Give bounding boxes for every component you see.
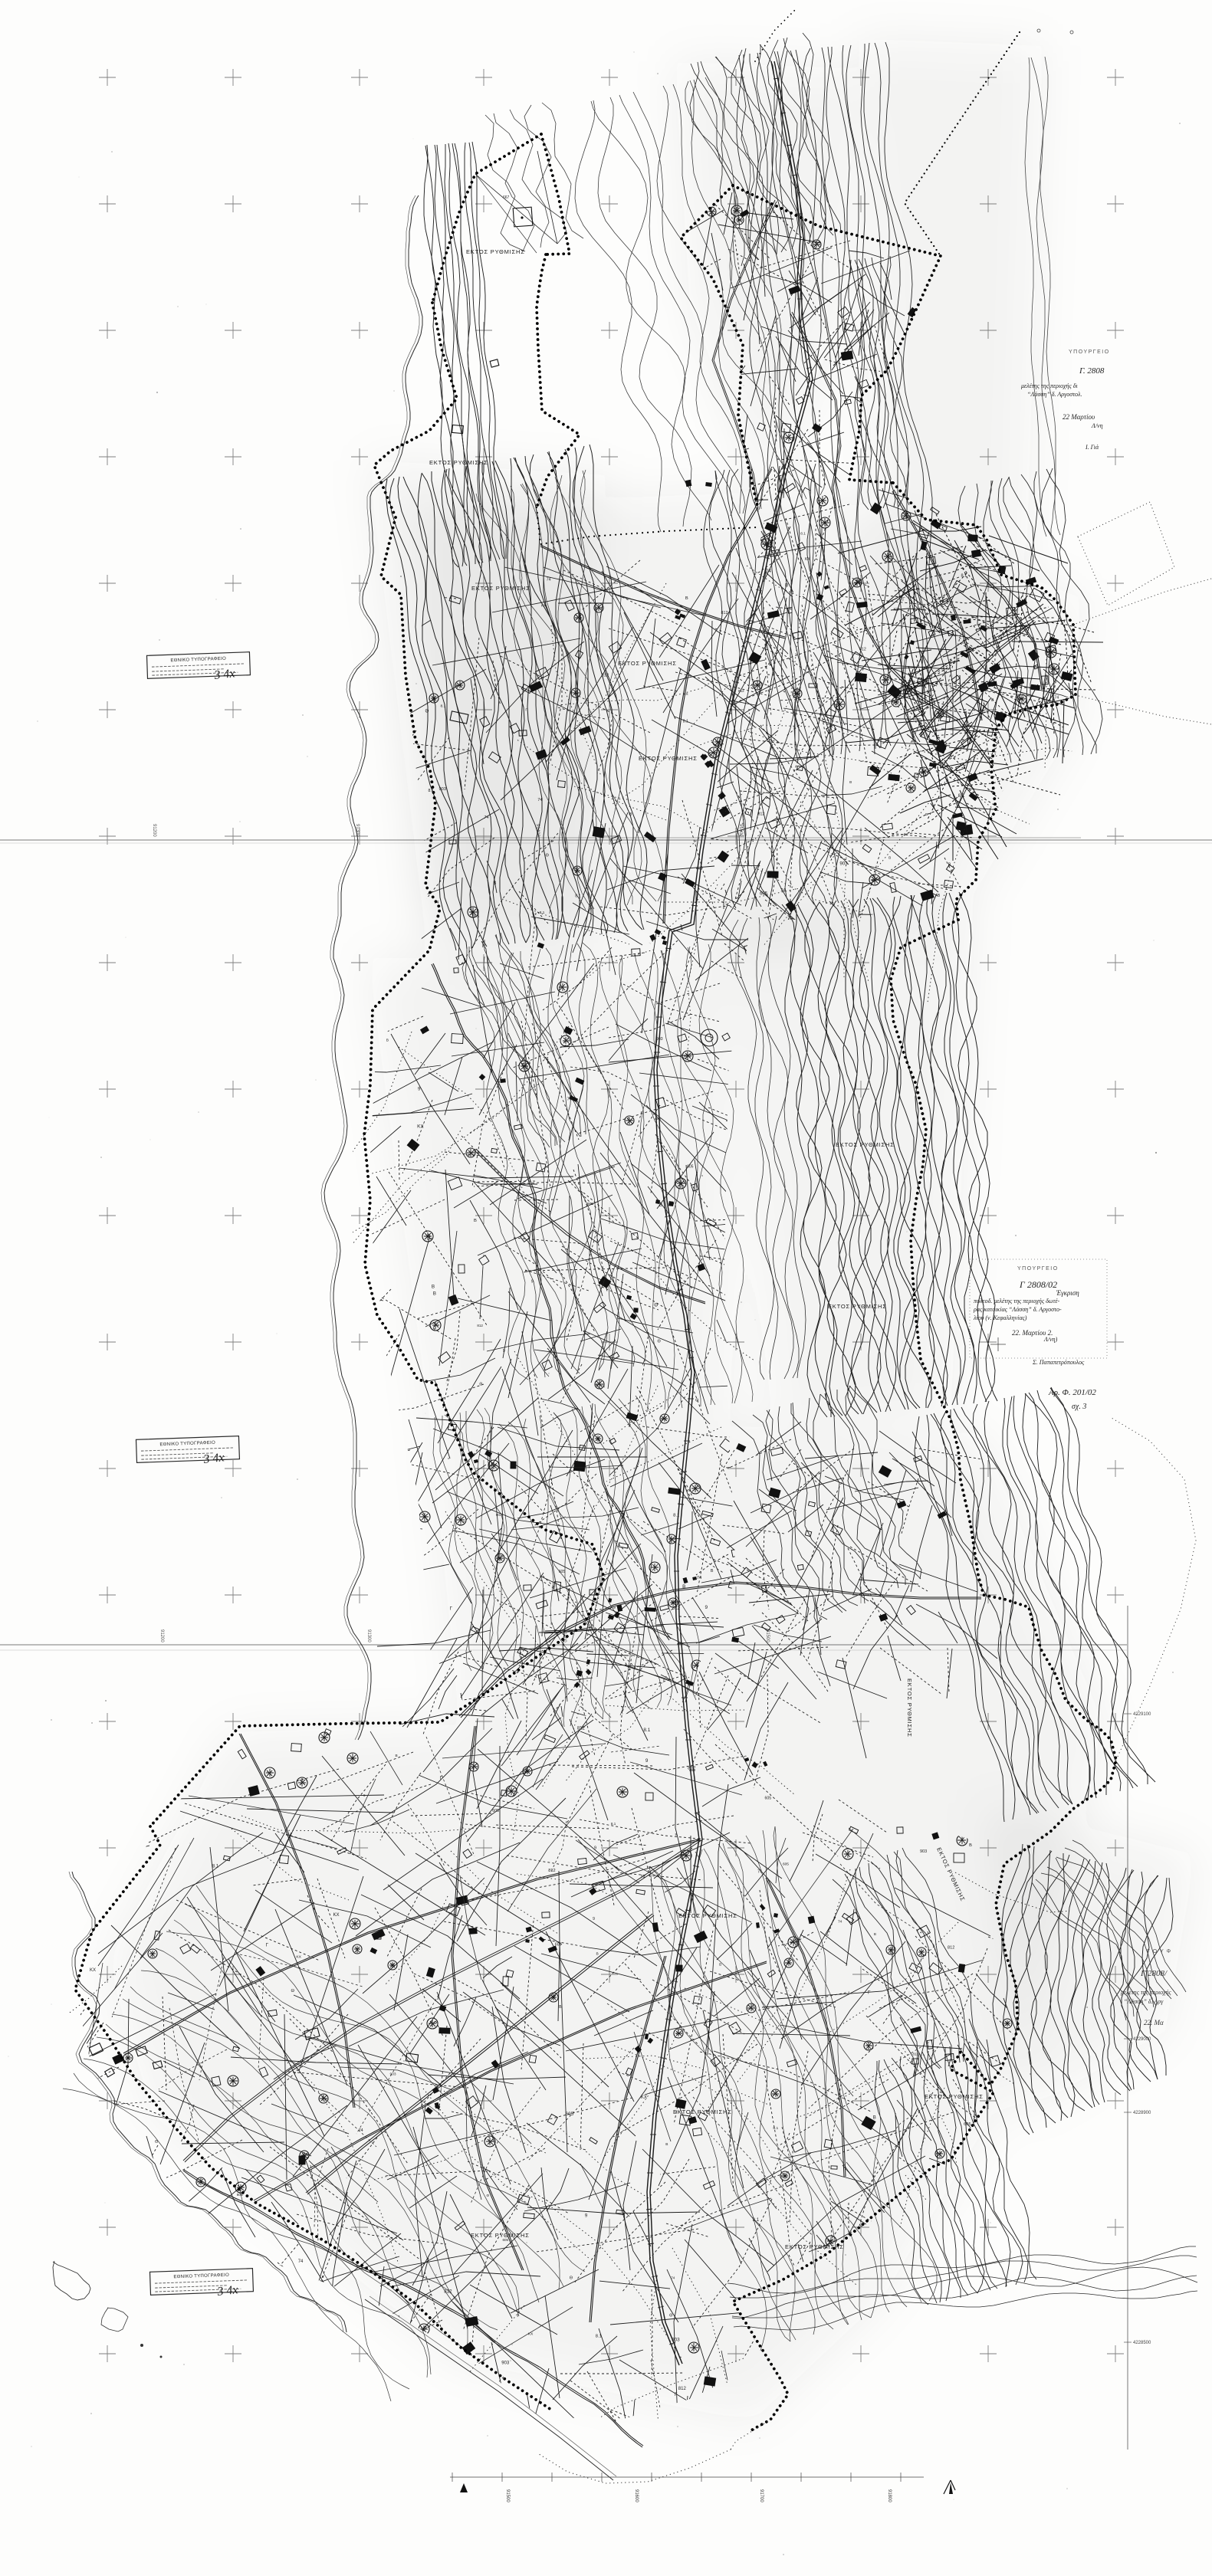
svg-text:74: 74 (780, 888, 786, 893)
svg-text:Θ: Θ (487, 2194, 490, 2197)
svg-text:605: 605 (555, 1942, 562, 1947)
svg-text:903: 903 (390, 2072, 396, 2077)
svg-text:91800: 91800 (887, 2489, 892, 2502)
svg-text:74: 74 (601, 1384, 606, 1389)
svg-text:74: 74 (567, 1098, 572, 1102)
svg-text:B: B (596, 1952, 598, 1957)
svg-text:Θ: Θ (479, 1382, 482, 1386)
svg-text:667: 667 (503, 195, 510, 200)
svg-text:Θ: Θ (849, 780, 852, 784)
svg-text:Γ: Γ (450, 1606, 453, 1611)
svg-text:605: 605 (783, 1862, 789, 1867)
svg-text:ΕΚΤΟΣ ΡΥΘΜΙΣΗΣ: ΕΚΤΟΣ ΡΥΘΜΙΣΗΣ (618, 660, 677, 667)
svg-text:903: 903 (496, 1513, 502, 1518)
svg-text:λίου (ν. Κεφαλληνίας): λίου (ν. Κεφαλληνίας) (973, 1314, 1027, 1321)
svg-text:Γ: Γ (902, 597, 905, 602)
svg-text:ΥΠΟΥΡΓΕΙΟ: ΥΠΟΥΡΓΕΙΟ (1069, 349, 1110, 355)
svg-text:ΕΚΤΟΣ ΡΥΘΜΙΣΗΣ: ΕΚΤΟΣ ΡΥΘΜΙΣΗΣ (785, 2243, 844, 2250)
svg-text:B: B (711, 1569, 714, 1573)
svg-text:KX: KX (333, 1912, 339, 1918)
svg-text:812: 812 (912, 2052, 918, 2056)
svg-text:605: 605 (964, 2122, 971, 2127)
svg-text:B: B (785, 583, 788, 589)
svg-text:74: 74 (298, 2259, 304, 2264)
svg-text:Θ: Θ (155, 2140, 158, 2144)
svg-text:8.1: 8.1 (773, 2126, 778, 2131)
svg-text:74: 74 (359, 2128, 363, 2133)
svg-text:903: 903 (656, 1037, 663, 1042)
svg-text:91200: 91200 (152, 824, 156, 837)
svg-text:9: 9 (418, 1086, 421, 1091)
svg-text:B: B (493, 881, 496, 886)
svg-text:74: 74 (484, 815, 489, 820)
svg-text:ΕΚΤΟΣ ΡΥΘΜΙΣΗΣ: ΕΚΤΟΣ ΡΥΘΜΙΣΗΣ (471, 2232, 530, 2239)
svg-text:B: B (559, 2005, 562, 2010)
svg-text:91700: 91700 (759, 2489, 764, 2502)
svg-text:B: B (682, 1584, 685, 1590)
svg-text:“Λάσση” δ. Αργοστολ.: “Λάσση” δ. Αργοστολ. (1027, 391, 1082, 398)
svg-text:605: 605 (687, 1165, 694, 1170)
svg-text:Γ: Γ (778, 601, 780, 605)
svg-text:ΥΠΟΥΡΓΕΙΟ: ΥΠΟΥΡΓΕΙΟ (1017, 1266, 1059, 1272)
svg-text:903: 903 (438, 787, 446, 792)
svg-text:Θ: Θ (291, 1989, 294, 1994)
svg-text:8.1: 8.1 (673, 1513, 679, 1518)
svg-text:Γ Ο Υ Φ: Γ Ο Υ Φ (1147, 1949, 1171, 1954)
svg-text:903: 903 (920, 1849, 927, 1854)
svg-text:Θ: Θ (425, 708, 429, 714)
svg-text:ΕΚΤΟΣ ΡΥΘΜΙΣΗΣ: ΕΚΤΟΣ ΡΥΘΜΙΣΗΣ (925, 2093, 984, 2100)
svg-text:Θ: Θ (658, 1339, 661, 1344)
svg-text:8.1: 8.1 (440, 704, 445, 708)
svg-text:B: B (665, 2142, 668, 2147)
svg-text:B: B (386, 1039, 389, 1043)
svg-text:91200: 91200 (159, 1629, 164, 1642)
svg-text:Θ: Θ (695, 1398, 698, 1403)
svg-text:B: B (659, 1203, 662, 1208)
svg-text:ΕΚΤΟΣ ΡΥΘΜΙΣΗΣ: ΕΚΤΟΣ ΡΥΘΜΙΣΗΣ (673, 2108, 732, 2115)
svg-text:22. Μα: 22. Μα (1144, 2019, 1164, 2026)
svg-text:74: 74 (671, 2276, 675, 2280)
svg-text:74: 74 (697, 1576, 702, 1580)
svg-text:3 4x: 3 4x (216, 2283, 239, 2299)
svg-text:Γ: Γ (266, 1943, 269, 1948)
svg-text:812: 812 (688, 1766, 696, 1771)
svg-text:812: 812 (672, 1606, 681, 1611)
svg-text:8.1: 8.1 (683, 719, 688, 724)
svg-text:KX: KX (90, 1968, 96, 1973)
svg-text:9: 9 (503, 1349, 505, 1354)
svg-text:605: 605 (559, 1570, 566, 1574)
svg-text:812: 812 (721, 611, 728, 615)
svg-text:9: 9 (705, 1605, 708, 1610)
svg-text:8.1: 8.1 (212, 1864, 219, 1869)
svg-text:91500: 91500 (505, 2489, 510, 2502)
svg-text:74: 74 (757, 1870, 762, 1875)
svg-text:4228500: 4228500 (1133, 2341, 1151, 2345)
svg-text:ΕΚΤΟΣ ΡΥΘΜΙΣΗΣ: ΕΚΤΟΣ ΡΥΘΜΙΣΗΣ (639, 755, 698, 762)
svg-text:91600: 91600 (634, 2489, 639, 2502)
svg-text:Θ: Θ (654, 1303, 658, 1308)
svg-text:605: 605 (492, 1809, 499, 1813)
svg-text:B: B (685, 596, 688, 601)
svg-text:4229100: 4229100 (1133, 1712, 1151, 1717)
svg-text:9: 9 (593, 1917, 595, 1921)
svg-text:812: 812 (477, 1324, 483, 1327)
svg-text:μελέτης της περιοχής: μελέτης της περιοχής (1120, 1989, 1171, 1996)
svg-text:B: B (433, 1291, 436, 1297)
svg-text:Θ: Θ (925, 812, 928, 816)
svg-text:Σ. Παπαπετρόπουλος: Σ. Παπαπετρόπουλος (1032, 1359, 1085, 1366)
svg-text:σχ. 3: σχ. 3 (1072, 1403, 1086, 1411)
svg-text:Έγκριση: Έγκριση (1056, 1289, 1079, 1297)
svg-text:“Λάσση” δ. Αργ: “Λάσση” δ. Αργ (1124, 1998, 1164, 2005)
svg-text:B: B (948, 863, 951, 868)
svg-text:ΕΚΤΟΣ ΡΥΘΜΙΣΗΣ: ΕΚΤΟΣ ΡΥΘΜΙΣΗΣ (678, 1912, 737, 1919)
svg-text:ΕΚΤΟΣ ΡΥΘΜΙΣΗΣ: ΕΚΤΟΣ ΡΥΘΜΙΣΗΣ (906, 1679, 913, 1738)
svg-text:812: 812 (577, 1727, 586, 1731)
svg-text:22 Μαρτίου: 22 Μαρτίου (1063, 413, 1095, 421)
svg-text:B: B (432, 1284, 435, 1289)
svg-text:ρας κατοικίας “Λάσση” δ. Αργοσ: ρας κατοικίας “Λάσση” δ. Αργοστο- (973, 1306, 1062, 1313)
svg-text:B: B (395, 1754, 397, 1758)
svg-text:ΕΚΤΟΣ ΡΥΘΜΙΣΗΣ: ΕΚΤΟΣ ΡΥΘΜΙΣΗΣ (471, 585, 530, 592)
svg-text:KX: KX (683, 692, 688, 697)
svg-text:74: 74 (537, 798, 542, 802)
svg-text:B: B (938, 894, 941, 898)
svg-text:μελέτης της περιοχής δι: μελέτης της περιοχής δι (1020, 382, 1078, 389)
svg-text:Θ: Θ (961, 641, 964, 645)
svg-text:ΕΚΤΟΣ ΡΥΘΜΙΣΗΣ: ΕΚΤΟΣ ΡΥΘΜΙΣΗΣ (828, 1303, 887, 1310)
svg-text:812: 812 (948, 1946, 954, 1951)
svg-text:Γ: Γ (868, 1990, 871, 1996)
svg-text:9: 9 (594, 1846, 596, 1851)
svg-text:812: 812 (738, 689, 744, 693)
svg-text:ΕΚΤΟΣ ΡΥΘΜΙΣΗΣ: ΕΚΤΟΣ ΡΥΘΜΙΣΗΣ (429, 459, 488, 466)
svg-text:812: 812 (678, 2387, 687, 2391)
svg-text:KX: KX (541, 604, 547, 609)
svg-text:8.1: 8.1 (611, 1822, 616, 1826)
svg-text:Θ: Θ (629, 812, 632, 817)
svg-text:ΕΚΤΟΣ ΡΥΘΜΙΣΗΣ: ΕΚΤΟΣ ΡΥΘΜΙΣΗΣ (466, 248, 525, 255)
svg-text:812: 812 (548, 1869, 555, 1873)
svg-text:903: 903 (672, 2337, 680, 2342)
svg-text:B: B (874, 1932, 876, 1936)
svg-text:8.1: 8.1 (575, 894, 580, 898)
svg-text:3 4x: 3 4x (202, 1451, 225, 1466)
svg-text:Αρ. Φ. 201/02: Αρ. Φ. 201/02 (1048, 1388, 1096, 1397)
svg-text:903: 903 (839, 861, 848, 866)
svg-text:Λ/νη: Λ/νη (1091, 422, 1103, 429)
svg-text:8.1: 8.1 (800, 531, 806, 536)
svg-text:8.1: 8.1 (643, 1728, 650, 1733)
svg-text:903: 903 (587, 1202, 593, 1206)
svg-text:8.1: 8.1 (753, 2217, 760, 2223)
svg-text:8.1: 8.1 (540, 911, 545, 915)
svg-text:Γ: Γ (525, 707, 527, 712)
svg-text:B: B (713, 1923, 715, 1927)
svg-text:KX: KX (805, 557, 810, 562)
svg-text:605: 605 (566, 2112, 574, 2117)
svg-text:Γ 2808/02: Γ 2808/02 (1019, 1279, 1057, 1290)
svg-text:74: 74 (1054, 696, 1059, 701)
svg-text:9: 9 (550, 1622, 553, 1626)
svg-text:812: 812 (444, 2289, 452, 2294)
svg-text:903: 903 (501, 2361, 510, 2366)
svg-text:8.1: 8.1 (596, 2334, 602, 2338)
svg-text:74: 74 (547, 578, 551, 582)
svg-text:812: 812 (859, 648, 866, 652)
svg-text:B: B (719, 1963, 721, 1967)
svg-text:812: 812 (602, 674, 609, 678)
svg-text:9: 9 (645, 1758, 649, 1764)
svg-text:Θ: Θ (669, 2314, 673, 2318)
svg-text:8.1: 8.1 (474, 914, 480, 919)
svg-text:Ι. Γιά: Ι. Γιά (1085, 444, 1099, 451)
svg-text:KX: KX (528, 2332, 534, 2337)
svg-text:B: B (991, 698, 994, 703)
svg-text:B: B (474, 1219, 477, 1223)
svg-text:3 4x: 3 4x (213, 667, 236, 682)
svg-text:B: B (888, 856, 891, 861)
svg-text:74: 74 (838, 1919, 842, 1924)
svg-text:4228900: 4228900 (1133, 2111, 1151, 2115)
svg-text:KX: KX (296, 1954, 301, 1959)
svg-text:Θ: Θ (546, 854, 550, 858)
svg-text:605: 605 (765, 1797, 772, 1801)
svg-text:KX: KX (417, 1124, 424, 1130)
svg-text:Γ 2808/: Γ 2808/ (1140, 1969, 1168, 1978)
svg-text:Θ: Θ (570, 2276, 573, 2281)
svg-text:9: 9 (531, 1280, 534, 1285)
svg-text:9: 9 (675, 1833, 677, 1836)
svg-text:B: B (873, 2116, 876, 2121)
svg-text:74: 74 (640, 1875, 645, 1880)
svg-text:πολεοδ. μελέτης της περιοχής δ: πολεοδ. μελέτης της περιοχής δωτέ- (974, 1298, 1059, 1304)
svg-text:91300: 91300 (366, 1629, 371, 1642)
svg-text:ΕΚΤΟΣ ΡΥΘΜΙΣΗΣ: ΕΚΤΟΣ ΡΥΘΜΙΣΗΣ (836, 1141, 895, 1148)
svg-text:Λ/νη): Λ/νη) (1043, 1336, 1058, 1343)
svg-text:Γ. 2808: Γ. 2808 (1079, 366, 1105, 376)
